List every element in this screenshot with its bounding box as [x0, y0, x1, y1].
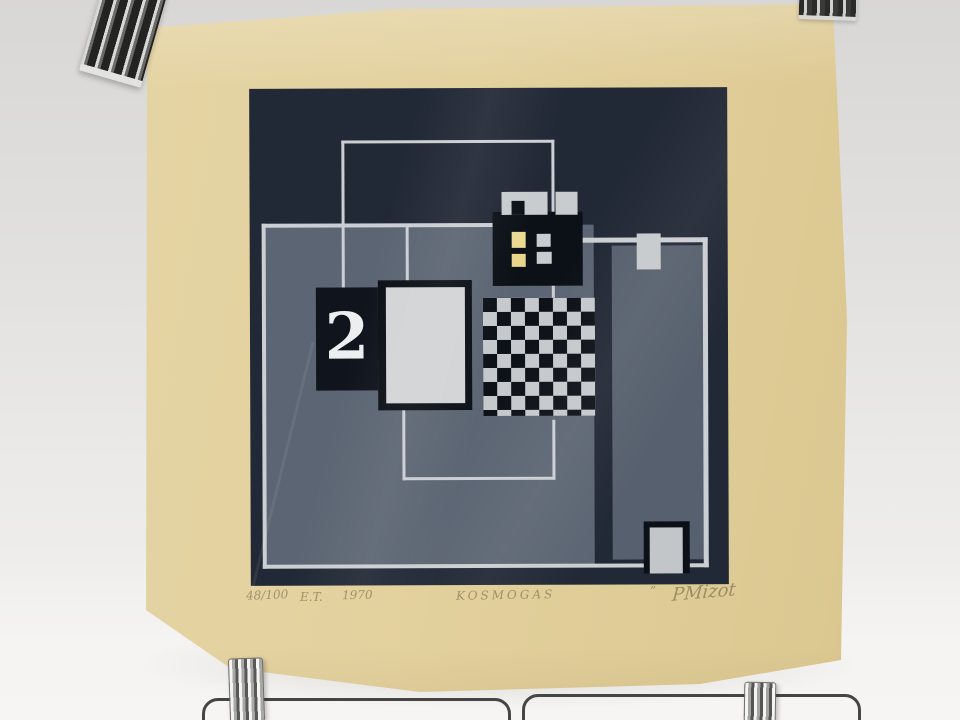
hanger-wire-right: [522, 694, 861, 720]
inscription-year: 1970: [342, 588, 373, 603]
inscription-title: KOSMOGAS: [456, 587, 556, 603]
clip-bottom-left: [228, 657, 265, 720]
serigraph-artwork: 2: [249, 87, 729, 586]
photo-scene: 2 48/100 E.T. 1970 KOSMOGAS ” PMizot: [0, 0, 960, 720]
inscription-edition: 48/100: [246, 587, 289, 602]
clip-top-right: [799, 0, 858, 21]
glare-highlight: [249, 87, 729, 586]
inscription-stray-mark: ”: [650, 584, 656, 598]
clip-bottom-right: [744, 682, 777, 720]
inscription-proof-mark: E.T.: [300, 590, 323, 604]
